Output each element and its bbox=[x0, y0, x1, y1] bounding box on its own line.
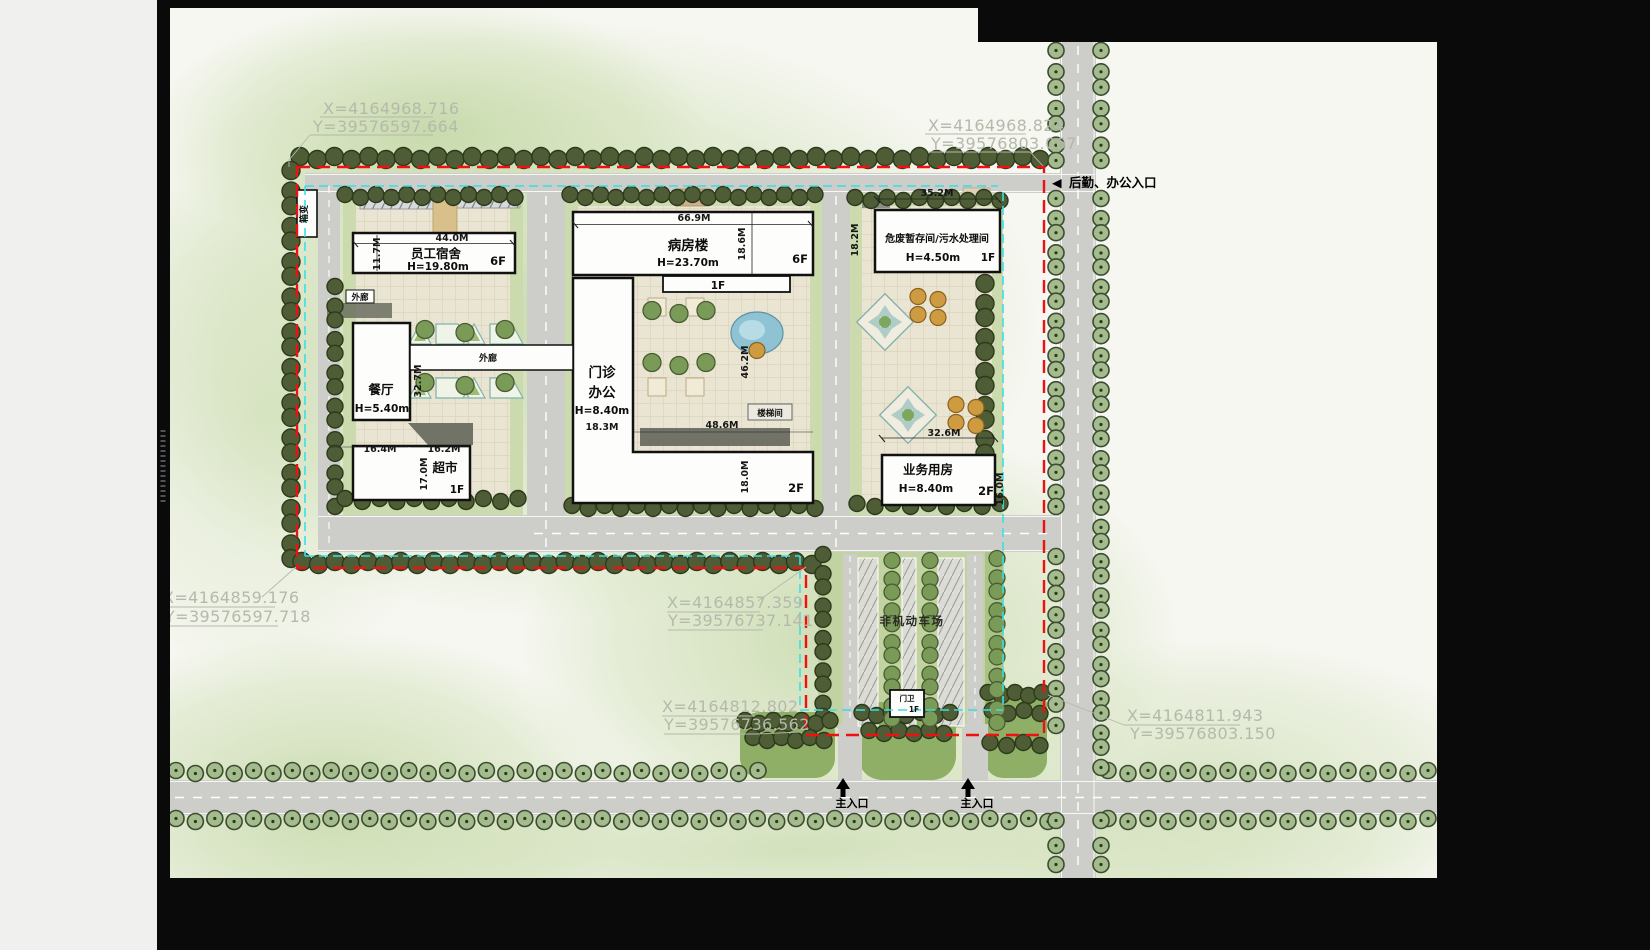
coord-0-x: X=4164968.716 bbox=[323, 99, 459, 118]
tree-row bbox=[1100, 763, 1436, 782]
main-entrance-label-2: 主入口 bbox=[961, 796, 994, 810]
service-entrance-arrow: ◀ bbox=[1052, 175, 1062, 190]
dim-hazmat-w: 35.2M bbox=[921, 188, 954, 199]
label-ward-name: 病房楼 bbox=[668, 237, 709, 254]
coord-2-x: X=4164859.176 bbox=[163, 588, 299, 607]
label-dorm-height: H=19.80m bbox=[407, 261, 469, 273]
label-business-name: 业务用房 bbox=[903, 462, 953, 477]
bottom-black-block bbox=[157, 878, 1437, 950]
tree-row bbox=[1093, 813, 1109, 873]
tree-row bbox=[562, 187, 823, 206]
label-clinic-height: H=8.40m bbox=[575, 405, 629, 417]
dim-market-w1: 16.4M bbox=[364, 444, 397, 455]
screenshot-stage: 44.0M 11.7M 员工宿舍 H=19.80m 6F 66.9M 病房楼 H… bbox=[0, 0, 1650, 950]
dim-clinic-w: 18.3M bbox=[586, 422, 619, 433]
dim-dorm-d: 11.7M bbox=[372, 238, 383, 271]
dim-court-d: 46.2M bbox=[740, 346, 751, 379]
label-dorm-name: 员工宿舍 bbox=[411, 246, 462, 261]
label-stairwell: 楼梯间 bbox=[757, 408, 783, 419]
label-ward-height: H=23.70m bbox=[657, 257, 719, 269]
tree-row bbox=[815, 547, 831, 725]
dim-ward-d: 18.6M bbox=[737, 228, 748, 261]
right-black-block bbox=[1437, 0, 1650, 950]
service-entrance-label: 后勤、办公入口 bbox=[1069, 175, 1157, 190]
dim-market-w2: 16.2M bbox=[428, 444, 461, 455]
coord-0-y: Y=39576597.664 bbox=[312, 117, 459, 136]
label-business-height: H=8.40m bbox=[899, 483, 953, 495]
tree-row bbox=[1100, 811, 1436, 830]
tree-row bbox=[1048, 191, 1064, 515]
coord-4-y: Y=39576736.562 bbox=[663, 715, 810, 734]
tree-row bbox=[643, 354, 715, 375]
coord-3-y: Y=39576737.141 bbox=[667, 611, 814, 630]
dim-canteen-d: 32.7M bbox=[413, 365, 424, 398]
dim-dorm-w: 44.0M bbox=[436, 233, 469, 244]
label-hazmat-floors: 1F bbox=[981, 252, 995, 264]
left-margin bbox=[0, 0, 157, 950]
building-ward-podium bbox=[663, 276, 790, 292]
label-market-name: 超市 bbox=[431, 460, 458, 475]
tree-row bbox=[643, 302, 715, 323]
label-business-floors: 2F bbox=[978, 484, 994, 498]
coord-1-x: X=4164968.824 bbox=[928, 116, 1064, 135]
label-canteen-name: 餐厅 bbox=[367, 382, 394, 397]
tree-row bbox=[749, 343, 765, 359]
coord-4-x: X=4164812.802 bbox=[662, 697, 798, 716]
label-clinic-floors: 2F bbox=[788, 481, 804, 495]
dim-market-d: 17.0M bbox=[419, 458, 430, 491]
label-transformer: 箱变 bbox=[298, 205, 310, 223]
label-clinic-line2: 办公 bbox=[589, 384, 617, 401]
dim-ward-w: 66.9M bbox=[678, 213, 711, 224]
coord-3-x: X=4164857.359 bbox=[667, 593, 803, 612]
label-gatehouse-floors: 1F bbox=[909, 705, 919, 714]
label-market-floors: 1F bbox=[450, 484, 464, 496]
dim-business-d: 16.0M bbox=[995, 473, 1006, 506]
coord-2-y: Y=39576597.718 bbox=[164, 607, 311, 626]
tree-row bbox=[1048, 813, 1064, 873]
label-hazmat-height: H=4.50m bbox=[906, 252, 960, 264]
coord-5-x: X=4164811.943 bbox=[1127, 706, 1263, 725]
top-right-black-block bbox=[978, 0, 1437, 42]
dim-hazmat-d: 18.2M bbox=[850, 224, 861, 257]
label-corridor-1: 外廊 bbox=[350, 292, 369, 303]
label-bike-parking: 非机动车场 bbox=[880, 614, 945, 628]
label-gatehouse-name: 门卫 bbox=[900, 693, 915, 703]
dim-business-w: 32.6M bbox=[928, 428, 961, 439]
label-dorm-floors: 6F bbox=[490, 254, 506, 268]
label-ward-podium-floors: 1F bbox=[711, 280, 725, 292]
dim-clinic-s: 18.0M bbox=[740, 461, 751, 494]
label-canteen-height: H=5.40m bbox=[355, 403, 409, 415]
label-clinic-line1: 门诊 bbox=[589, 364, 617, 381]
label-corridor-2: 外廊 bbox=[478, 352, 497, 364]
coord-5-y: Y=39576803.150 bbox=[1129, 724, 1276, 743]
dim-court-w: 48.6M bbox=[706, 420, 739, 431]
tree-row bbox=[976, 275, 994, 463]
label-ward-floors: 6F bbox=[792, 252, 808, 266]
main-entrance-label-1: 主入口 bbox=[836, 796, 869, 810]
label-hazmat-name: 危废暂存间/污水处理间 bbox=[885, 232, 989, 245]
site-plan-canvas: 44.0M 11.7M 员工宿舍 H=19.80m 6F 66.9M 病房楼 H… bbox=[0, 0, 1650, 950]
coord-1-y: Y=39576803.067 bbox=[930, 134, 1077, 153]
